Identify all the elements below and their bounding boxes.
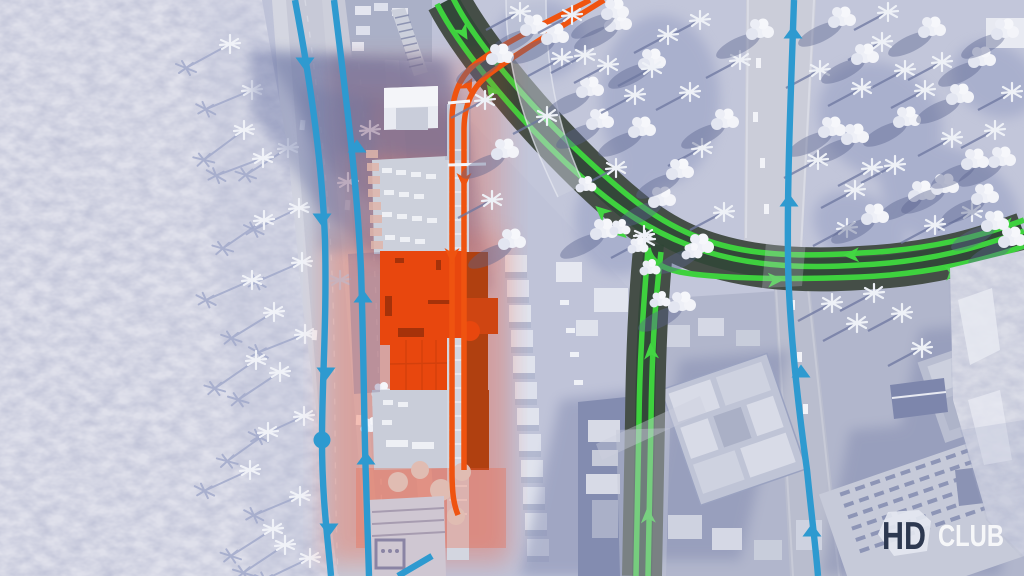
svg-text:HD: HD xyxy=(882,515,926,558)
svg-text:CLUB: CLUB xyxy=(938,518,1004,553)
